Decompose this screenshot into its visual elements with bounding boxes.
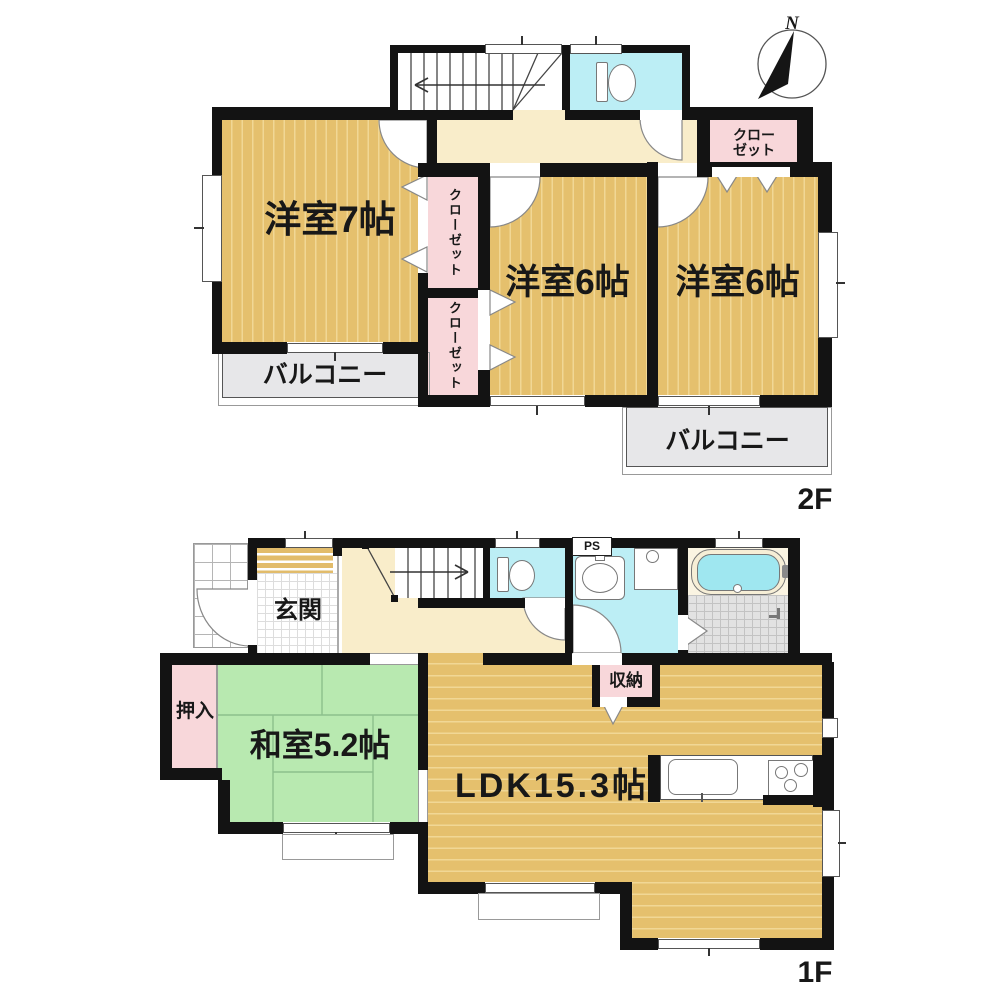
- hall-1f-floor: [342, 548, 395, 653]
- balcony-south-label: バルコニー: [650, 426, 805, 456]
- room-west-label: 洋室7帖: [240, 195, 420, 245]
- room-east-label: 洋室6帖: [655, 258, 820, 308]
- hallway-2f-floor: [437, 117, 697, 163]
- bay-window-outline: [478, 893, 600, 920]
- compass-icon: [758, 30, 826, 99]
- compass-north-label: N: [779, 12, 805, 36]
- balcony-west-label: バルコニー: [250, 360, 400, 390]
- toilet-icon: [596, 62, 608, 102]
- ldk-label: LDK15.3帖: [442, 766, 662, 808]
- entrance-label: 玄関: [262, 596, 334, 626]
- floor2-label: 2F: [785, 482, 845, 518]
- closet-lower-label: クローゼット: [432, 300, 476, 392]
- stairs-2f-floor: [398, 53, 562, 110]
- floorplan: PS 洋室7帖 洋室6帖 洋室6帖 クロー ゼット クローゼット クローゼット …: [0, 0, 1000, 1000]
- pipe-space: PS: [572, 537, 612, 556]
- japanese-room-label: 和室5.2帖: [235, 725, 405, 767]
- entrance-step: [257, 548, 333, 573]
- entrance-porch-tiles: [193, 543, 248, 648]
- stairs-1f-floor: [395, 548, 483, 598]
- oshiire-label: 押入: [171, 700, 219, 724]
- toilet-icon: [497, 557, 509, 592]
- storage-label: 収納: [600, 668, 652, 694]
- bay-window-outline: [282, 834, 394, 860]
- closet-northeast-label: クロー ゼット: [712, 119, 796, 167]
- kitchen-sink-icon: [668, 759, 738, 795]
- pipe-space-label: PS: [584, 540, 600, 553]
- room-center-label: 洋室6帖: [485, 258, 650, 308]
- floor1-label: 1F: [785, 955, 845, 991]
- bathroom-tile-floor: [688, 595, 788, 653]
- closet-upper-label: クローゼット: [432, 182, 476, 284]
